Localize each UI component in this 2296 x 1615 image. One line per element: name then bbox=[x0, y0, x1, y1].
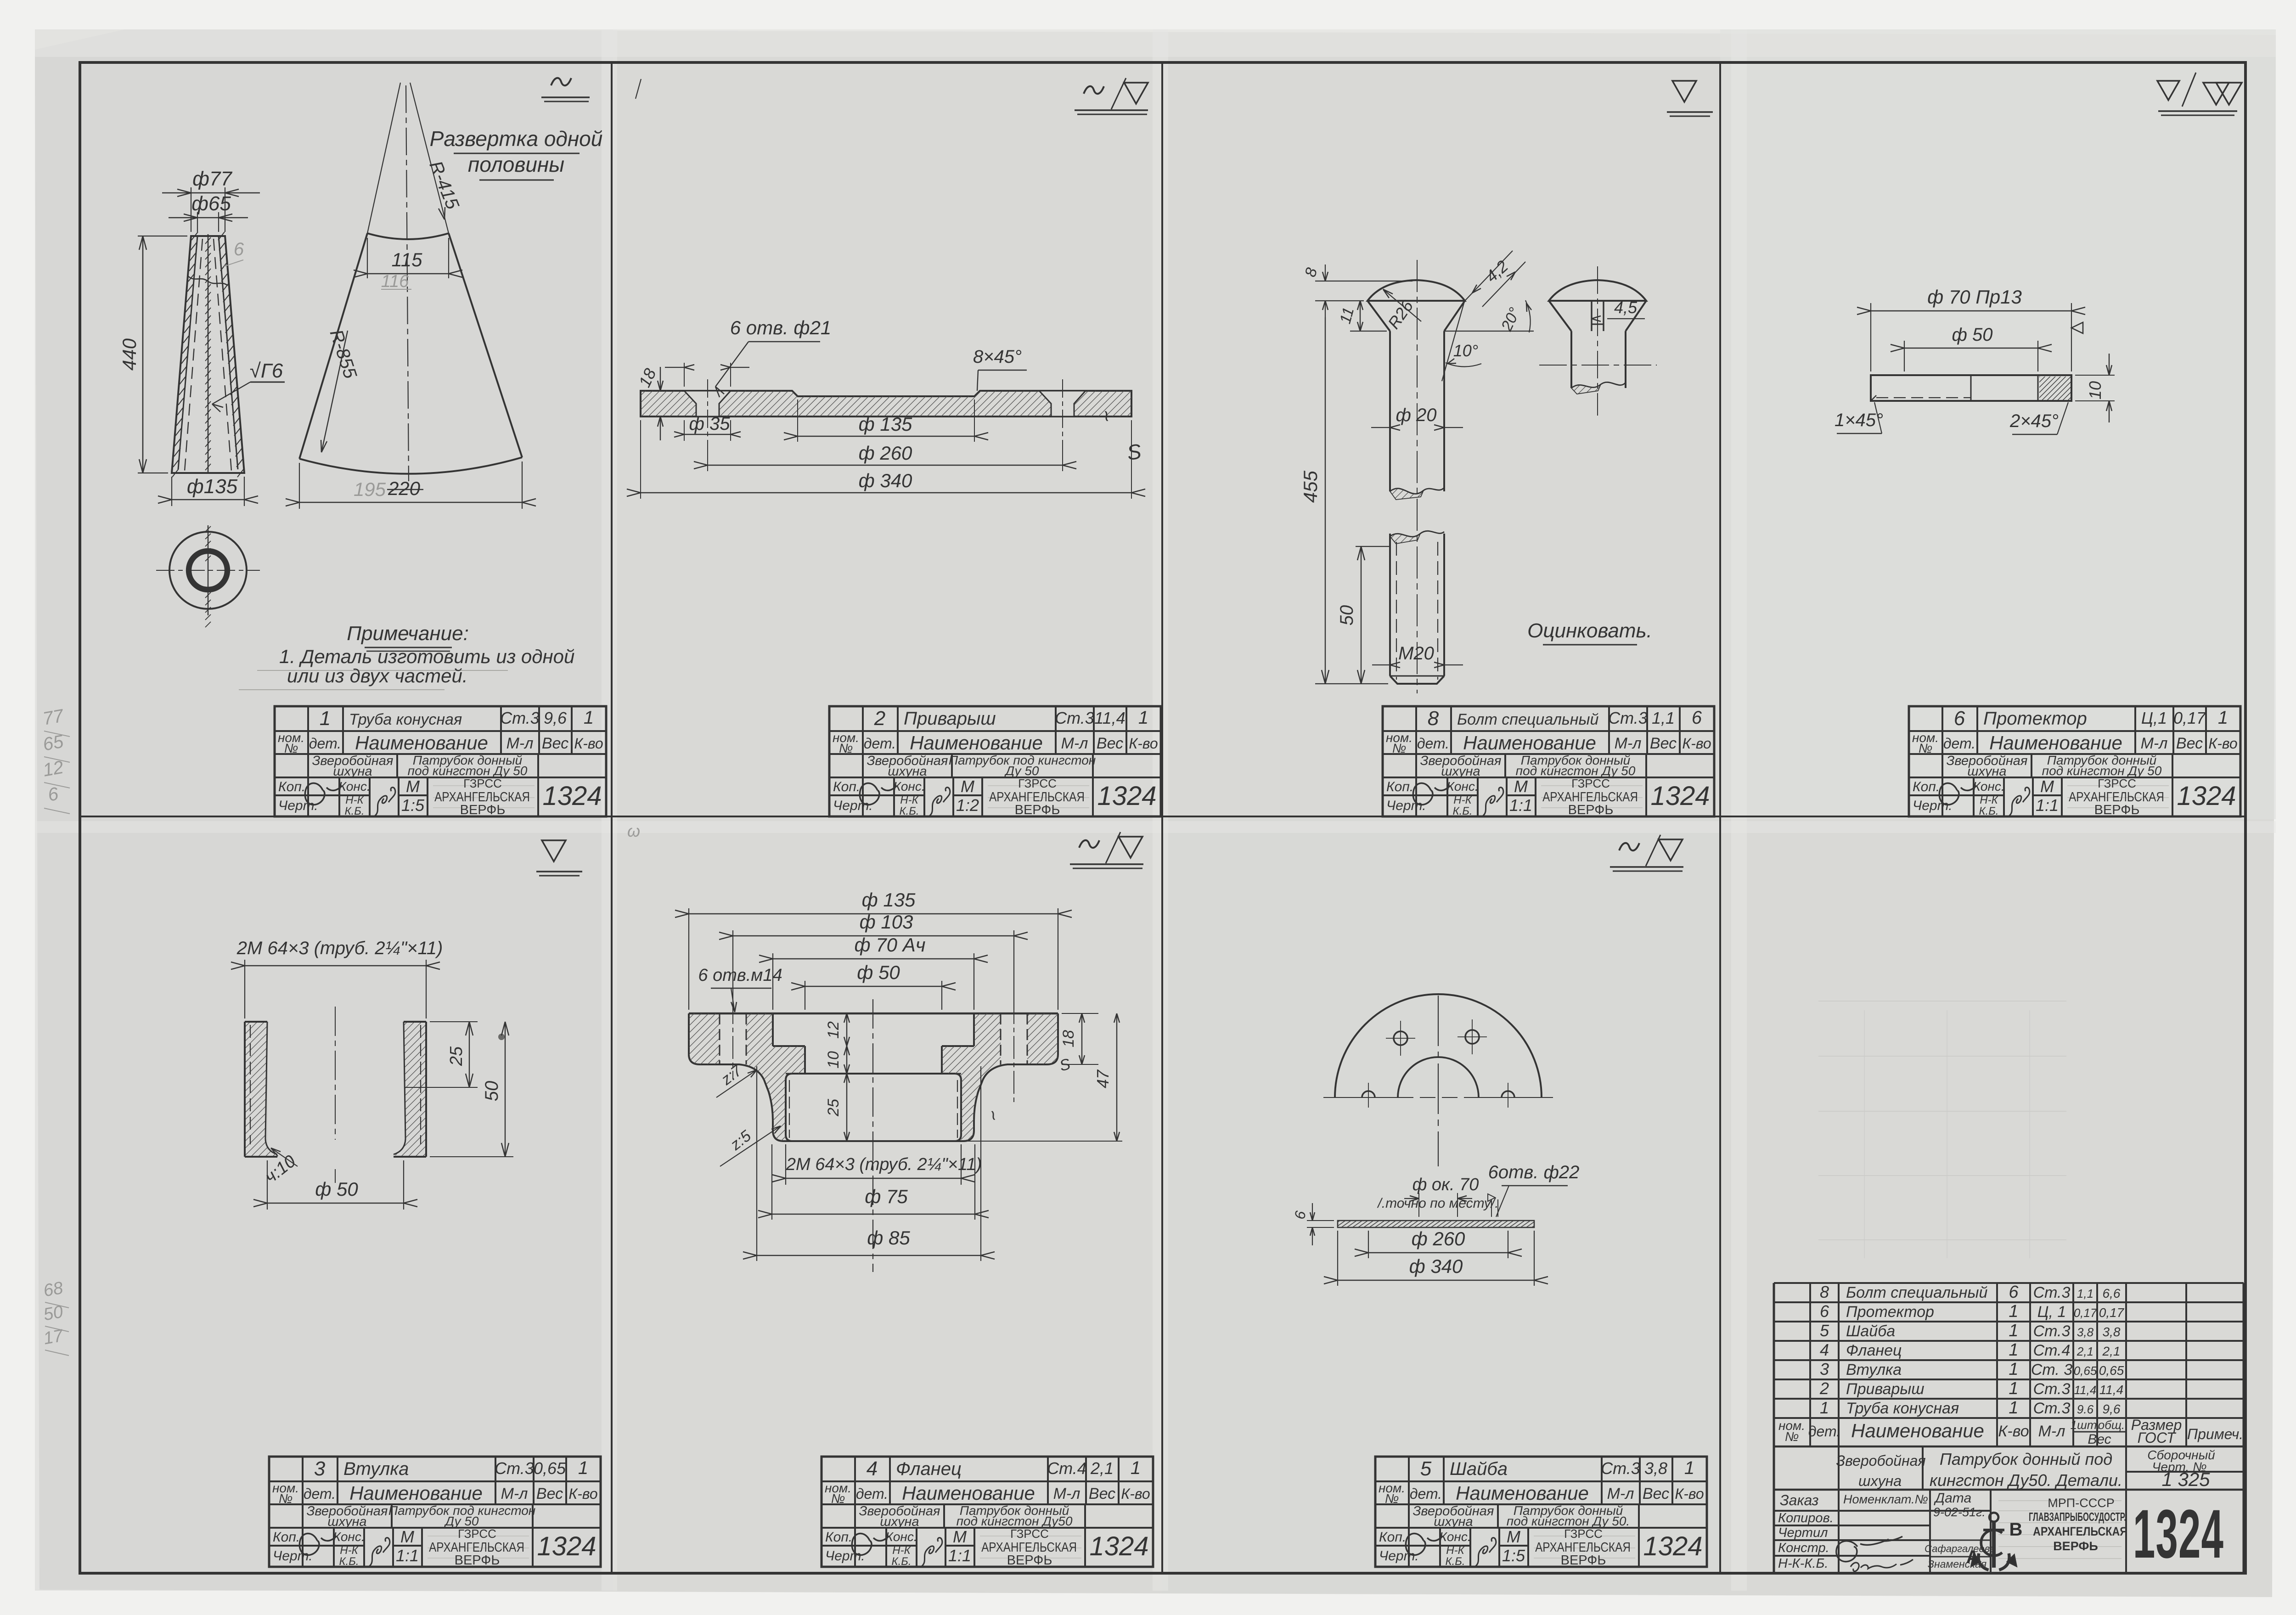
svg-text:0,17: 0,17 bbox=[2074, 1306, 2098, 1320]
svg-text:Конс.: Конс. bbox=[1446, 779, 1478, 793]
svg-text:6: 6 bbox=[1820, 1302, 1829, 1321]
svg-text:1: 1 bbox=[584, 708, 594, 728]
svg-text:№: № bbox=[831, 1491, 845, 1506]
svg-text:Втулка: Втулка bbox=[1846, 1361, 1902, 1379]
svg-text:Вес: Вес bbox=[1089, 1485, 1115, 1502]
svg-text:К.Б.: К.Б. bbox=[1452, 805, 1472, 817]
svg-text:Н-К: Н-К bbox=[340, 1544, 359, 1557]
svg-text:АРХАНГЕЛЬСКАЯ: АРХАНГЕЛЬСКАЯ bbox=[1535, 1540, 1631, 1554]
svg-text:М: М bbox=[953, 1527, 967, 1546]
svg-text:Ст.3: Ст.3 bbox=[1055, 709, 1094, 727]
svg-text:М-л: М-л bbox=[506, 735, 534, 752]
svg-text:К-во: К-во bbox=[1998, 1423, 2029, 1440]
svg-text:1: 1 bbox=[2009, 1379, 2018, 1398]
svg-text:Конс.: Конс. bbox=[333, 1530, 365, 1544]
svg-text:дет.: дет. bbox=[1410, 1486, 1442, 1502]
svg-text:1: 1 bbox=[1131, 1458, 1141, 1478]
svg-text:Коп.: Коп. bbox=[833, 779, 860, 794]
svg-text:Примеч.: Примеч. bbox=[2187, 1426, 2243, 1442]
svg-text:Зверобойная: Зверобойная bbox=[1836, 1452, 1925, 1469]
svg-text:Оцинковать.: Оцинковать. bbox=[1527, 619, 1652, 642]
svg-text:Наименование: Наименование bbox=[1463, 732, 1596, 754]
svg-text:дет.: дет. bbox=[304, 1486, 336, 1502]
svg-text:1: 1 bbox=[2009, 1321, 2018, 1340]
svg-text:1 325: 1 325 bbox=[2161, 1469, 2210, 1490]
svg-text:1: 1 bbox=[2218, 708, 2228, 728]
svg-text:440: 440 bbox=[118, 338, 140, 371]
svg-text:0,17: 0,17 bbox=[2173, 709, 2206, 727]
svg-text:11,4: 11,4 bbox=[2074, 1383, 2097, 1397]
svg-text:Наименование: Наименование bbox=[349, 1482, 483, 1504]
svg-text:ф 260: ф 260 bbox=[1412, 1228, 1465, 1249]
svg-text:под кингстон Ду 50.: под кингстон Ду 50. bbox=[1507, 1514, 1630, 1528]
svg-text:8: 8 bbox=[1820, 1283, 1829, 1301]
svg-text:Ст.3: Ст.3 bbox=[2033, 1322, 2071, 1340]
svg-text:Наименование: Наименование bbox=[1456, 1482, 1589, 1504]
svg-text:А: А bbox=[1966, 1547, 1980, 1567]
svg-text:Патрубок донный под: Патрубок донный под bbox=[1940, 1450, 2112, 1469]
svg-text:25: 25 bbox=[825, 1099, 842, 1117]
svg-text:дет.: дет. bbox=[1943, 735, 1975, 752]
svg-text:М-л: М-л bbox=[1615, 735, 1642, 752]
svg-text:2×45°: 2×45° bbox=[2009, 411, 2059, 431]
svg-text:2,1: 2,1 bbox=[2077, 1345, 2093, 1358]
svg-text:0,17: 0,17 bbox=[2099, 1306, 2125, 1320]
svg-text:Вес: Вес bbox=[1643, 1485, 1669, 1502]
svg-text:0,65: 0,65 bbox=[2099, 1363, 2124, 1378]
svg-text:Болт специальный: Болт специальный bbox=[1457, 711, 1599, 728]
svg-text:12: 12 bbox=[41, 757, 65, 781]
svg-text:2: 2 bbox=[874, 707, 885, 730]
svg-text:дет.: дет. bbox=[1808, 1423, 1840, 1440]
svg-text:ГЗРСС: ГЗРСС bbox=[1018, 777, 1057, 790]
svg-text:АРХАНГЕЛЬСКАЯ: АРХАНГЕЛЬСКАЯ bbox=[1542, 789, 1638, 804]
svg-text:ф65: ф65 bbox=[191, 192, 231, 215]
svg-text:1324: 1324 bbox=[542, 781, 602, 811]
svg-text:ВЕРФЬ: ВЕРФЬ bbox=[1561, 1553, 1606, 1568]
svg-text:шхуна: шхуна bbox=[1967, 764, 2006, 779]
svg-text:9.6: 9.6 bbox=[2077, 1402, 2094, 1416]
svg-text:под кингстон Ду 50: под кингстон Ду 50 bbox=[2042, 764, 2162, 778]
svg-text:1: 1 bbox=[2009, 1340, 2018, 1360]
svg-text:Н-К-К.Б.: Н-К-К.Б. bbox=[1778, 1556, 1828, 1571]
svg-text:6: 6 bbox=[2009, 1283, 2019, 1302]
svg-text:1:5: 1:5 bbox=[401, 796, 425, 815]
svg-text:Вес: Вес bbox=[536, 1485, 563, 1502]
svg-text:1: 1 bbox=[2009, 1360, 2018, 1379]
svg-text:М: М bbox=[2040, 777, 2054, 796]
svg-text:дет.: дет. bbox=[856, 1486, 888, 1502]
svg-text:кингстон Ду50. Детали.: кингстон Ду50. Детали. bbox=[1930, 1471, 2122, 1490]
svg-text:ВЕРФЬ: ВЕРФЬ bbox=[1007, 1553, 1052, 1568]
svg-text:половины: половины bbox=[468, 152, 564, 176]
svg-text:К-во: К-во bbox=[1682, 735, 1711, 752]
svg-text:1: 1 bbox=[1820, 1398, 1829, 1417]
svg-text:9,6: 9,6 bbox=[544, 709, 567, 727]
svg-text:ф 20: ф 20 bbox=[1396, 405, 1436, 425]
svg-text:3: 3 bbox=[314, 1457, 326, 1480]
svg-text:Фланец: Фланец bbox=[1846, 1342, 1902, 1359]
svg-text:Труба конусная: Труба конусная bbox=[1846, 1400, 1959, 1417]
svg-text:√Г6: √Г6 bbox=[250, 360, 283, 382]
svg-text:К.Б.: К.Б. bbox=[339, 1555, 359, 1568]
svg-text:АРХАНГЕЛЬСКАЯ: АРХАНГЕЛЬСКАЯ bbox=[2033, 1525, 2127, 1538]
svg-text:455: 455 bbox=[1300, 470, 1321, 503]
svg-text:под кингстон Ду50: под кингстон Ду50 bbox=[957, 1514, 1073, 1528]
svg-text:2М 64×3 (труб. 2¼"×11): 2М 64×3 (труб. 2¼"×11) bbox=[236, 938, 443, 958]
svg-text:2,1: 2,1 bbox=[1090, 1459, 1114, 1478]
svg-text:ВЕРФЬ: ВЕРФЬ bbox=[460, 803, 506, 817]
svg-text:АРХАНГЕЛЬСКАЯ: АРХАНГЕЛЬСКАЯ bbox=[434, 789, 530, 804]
svg-text:/.точно по месту/.: /.точно по месту/. bbox=[1377, 1196, 1498, 1211]
svg-text:Дата: Дата bbox=[1934, 1491, 1971, 1506]
svg-text:1шт.: 1шт. bbox=[2071, 1418, 2100, 1432]
svg-text:№: № bbox=[1392, 741, 1406, 755]
svg-text:ГЗРСС: ГЗРСС bbox=[1571, 777, 1610, 790]
svg-text:ВЕРФЬ: ВЕРФЬ bbox=[1015, 803, 1060, 817]
svg-text:1324: 1324 bbox=[1643, 1531, 1702, 1561]
svg-text:1: 1 bbox=[2009, 1302, 2018, 1321]
svg-text:Н-К: Н-К bbox=[1980, 794, 1998, 806]
svg-text:4,5: 4,5 bbox=[1614, 298, 1638, 317]
svg-text:шхуна: шхуна bbox=[1858, 1473, 1902, 1489]
svg-text:М: М bbox=[406, 777, 420, 796]
svg-text:Болт специальный: Болт специальный bbox=[1846, 1284, 1988, 1301]
svg-text:№: № bbox=[839, 741, 853, 755]
svg-text:ф 35: ф 35 bbox=[689, 414, 730, 434]
svg-text:под кингстон Ду 50: под кингстон Ду 50 bbox=[1516, 764, 1636, 778]
svg-text:М: М bbox=[1507, 1527, 1520, 1546]
svg-text:3,8: 3,8 bbox=[1644, 1459, 1667, 1478]
svg-text:шхуна: шхуна bbox=[880, 1514, 919, 1529]
svg-text:6 отв.м14: 6 отв.м14 bbox=[698, 966, 782, 985]
svg-text:АРХАНГЕЛЬСКАЯ: АРХАНГЕЛЬСКАЯ bbox=[981, 1540, 1077, 1554]
svg-text:Наименование: Наименование bbox=[1851, 1420, 1984, 1441]
svg-text:2: 2 bbox=[1819, 1379, 1829, 1398]
svg-text:шхуна: шхуна bbox=[333, 764, 372, 779]
svg-text:М-л: М-л bbox=[1607, 1485, 1634, 1502]
svg-text:АРХАНГЕЛЬСКАЯ: АРХАНГЕЛЬСКАЯ bbox=[989, 789, 1085, 804]
svg-text:3,8: 3,8 bbox=[2103, 1325, 2121, 1339]
svg-text:ВЕРФЬ: ВЕРФЬ bbox=[2053, 1539, 2098, 1553]
svg-text:Черт.: Черт. bbox=[825, 1548, 865, 1564]
svg-text:Конс.: Конс. bbox=[1439, 1530, 1471, 1544]
svg-text:9-02-51г.: 9-02-51г. bbox=[1933, 1505, 1986, 1519]
svg-text:10: 10 bbox=[825, 1051, 842, 1069]
svg-text:2,1: 2,1 bbox=[2102, 1344, 2121, 1358]
svg-text:Приварыш: Приварыш bbox=[1846, 1380, 1925, 1398]
svg-text:50: 50 bbox=[1337, 605, 1357, 626]
svg-text:1:1: 1:1 bbox=[948, 1546, 971, 1565]
svg-text:Коп.: Коп. bbox=[1386, 779, 1413, 794]
svg-text:1: 1 bbox=[1684, 1458, 1694, 1478]
svg-text:Констр.: Констр. bbox=[1778, 1541, 1829, 1555]
svg-text:дет.: дет. bbox=[1417, 735, 1449, 752]
svg-text:10°: 10° bbox=[1453, 341, 1478, 360]
svg-text:ф 135: ф 135 bbox=[862, 889, 916, 911]
svg-text:1:1: 1:1 bbox=[396, 1546, 419, 1565]
svg-text:ВЕРФЬ: ВЕРФЬ bbox=[455, 1553, 500, 1568]
svg-text:0,65: 0,65 bbox=[2074, 1364, 2097, 1378]
svg-text:9,6: 9,6 bbox=[2103, 1402, 2121, 1416]
svg-text:1×45°: 1×45° bbox=[1835, 410, 1883, 430]
svg-text:Наименование: Наименование bbox=[355, 732, 488, 754]
svg-text:Конс.: Конс. bbox=[1973, 779, 2004, 793]
svg-text:В: В bbox=[2009, 1519, 2023, 1540]
svg-text:220: 220 bbox=[388, 478, 421, 499]
svg-text:ф 260: ф 260 bbox=[859, 442, 912, 464]
svg-text:М: М bbox=[400, 1527, 414, 1546]
svg-text:11,4: 11,4 bbox=[2099, 1383, 2123, 1397]
svg-text:18: 18 bbox=[1060, 1030, 1077, 1047]
svg-text:1: 1 bbox=[578, 1458, 588, 1478]
svg-text:50: 50 bbox=[42, 1302, 64, 1325]
svg-text:М: М bbox=[961, 777, 974, 796]
svg-text:ГЗРСС: ГЗРСС bbox=[458, 1527, 496, 1541]
svg-text:68: 68 bbox=[42, 1278, 64, 1301]
svg-text:ф 50: ф 50 bbox=[1952, 325, 1992, 345]
svg-text:ГОСТ: ГОСТ bbox=[2138, 1429, 2177, 1446]
svg-text:47: 47 bbox=[1093, 1069, 1112, 1088]
svg-text:Черт.: Черт. bbox=[1386, 798, 1426, 813]
svg-text:Коп.: Коп. bbox=[1379, 1530, 1406, 1545]
svg-text:1324: 1324 bbox=[1650, 781, 1710, 811]
svg-text:К-во: К-во bbox=[1121, 1486, 1150, 1502]
svg-text:К.Б.: К.Б. bbox=[899, 805, 919, 817]
svg-text:М-л: М-л bbox=[501, 1485, 528, 1502]
svg-text:М-л: М-л bbox=[1053, 1485, 1080, 1502]
svg-text:ГЛАВЗАПРЫБОСУДОСТР.: ГЛАВЗАПРЫБОСУДОСТР. bbox=[2029, 1510, 2126, 1524]
svg-text:Ду 50: Ду 50 bbox=[444, 1514, 479, 1528]
svg-text:Шайба: Шайба bbox=[1846, 1322, 1895, 1340]
svg-text:115: 115 bbox=[392, 249, 423, 270]
svg-text:ГЗРСС: ГЗРСС bbox=[1010, 1527, 1049, 1541]
svg-text:8×45°: 8×45° bbox=[973, 347, 1022, 367]
svg-text:ф 340: ф 340 bbox=[1409, 1255, 1463, 1277]
svg-text:1:2: 1:2 bbox=[956, 796, 979, 815]
svg-text:Труба конусная: Труба конусная bbox=[349, 711, 462, 728]
svg-text:65: 65 bbox=[41, 732, 65, 755]
svg-text:Коп.: Коп. bbox=[1913, 779, 1940, 794]
svg-text:Коп.: Коп. bbox=[278, 779, 305, 794]
svg-text:Ст. 3: Ст. 3 bbox=[2031, 1361, 2072, 1379]
svg-text:№: № bbox=[1919, 741, 1932, 755]
svg-text:1:1: 1:1 bbox=[2036, 796, 2059, 815]
svg-text:МРП-СССР: МРП-СССР bbox=[2048, 1496, 2114, 1510]
svg-text:4: 4 bbox=[867, 1457, 878, 1480]
svg-text:под кингстон Ду 50: под кингстон Ду 50 bbox=[408, 764, 528, 778]
svg-text:Черт.: Черт. bbox=[273, 1548, 313, 1564]
svg-text:К-во: К-во bbox=[1675, 1486, 1704, 1502]
svg-text:Заказ: Заказ bbox=[1780, 1492, 1819, 1508]
svg-text:1:1: 1:1 bbox=[1509, 796, 1532, 815]
svg-text:№: № bbox=[279, 1491, 293, 1506]
svg-text:К.Б.: К.Б. bbox=[891, 1555, 911, 1568]
svg-text:М: М bbox=[1514, 777, 1528, 796]
svg-text:ГЗРСС: ГЗРСС bbox=[463, 777, 502, 790]
svg-text:1324: 1324 bbox=[2133, 1495, 2224, 1572]
svg-text:ВЕРФЬ: ВЕРФЬ bbox=[1568, 803, 1614, 817]
svg-text:116: 116 bbox=[381, 272, 409, 291]
svg-text:ф 50: ф 50 bbox=[857, 962, 900, 983]
svg-text:0,65: 0,65 bbox=[534, 1459, 566, 1478]
svg-text:АРХАНГЕЛЬСКАЯ: АРХАНГЕЛЬСКАЯ bbox=[429, 1540, 524, 1554]
svg-text:Конс.: Конс. bbox=[885, 1530, 917, 1544]
svg-text:11,4: 11,4 bbox=[1094, 709, 1125, 727]
svg-text:25: 25 bbox=[447, 1046, 466, 1066]
svg-text:1: 1 bbox=[320, 707, 331, 730]
svg-text:К.Б.: К.Б. bbox=[1979, 805, 1998, 817]
svg-text:ф 70 Ач: ф 70 Ач bbox=[855, 934, 926, 956]
svg-text:1: 1 bbox=[1138, 708, 1148, 728]
svg-text:Чертил: Чертил bbox=[1778, 1525, 1828, 1540]
svg-text:Ст.3: Ст.3 bbox=[1608, 709, 1648, 727]
svg-text:Ст.3: Ст.3 bbox=[2033, 1380, 2071, 1398]
svg-text:Ст.4: Ст.4 bbox=[2033, 1342, 2071, 1359]
svg-text:ф 70 Пр13: ф 70 Пр13 bbox=[1927, 286, 2022, 308]
svg-text:Приварыш: Приварыш bbox=[904, 709, 996, 729]
svg-text:ф 103: ф 103 bbox=[860, 911, 913, 933]
svg-text:ВЕРФЬ: ВЕРФЬ bbox=[2094, 803, 2140, 817]
svg-text:Черт.: Черт. bbox=[1379, 1548, 1419, 1564]
svg-text:Номенклат.№: Номенклат.№ bbox=[1843, 1492, 1928, 1506]
svg-text:Черт.: Черт. bbox=[833, 798, 873, 813]
svg-text:Коп.: Коп. bbox=[273, 1530, 300, 1545]
svg-text:дет.: дет. bbox=[864, 735, 896, 752]
svg-text:Вес: Вес bbox=[2176, 735, 2203, 752]
svg-text:Протектор: Протектор bbox=[1983, 709, 2087, 729]
svg-text:ф 85: ф 85 bbox=[867, 1227, 910, 1249]
svg-text:5: 5 bbox=[1820, 1321, 1829, 1340]
svg-text:Вес: Вес bbox=[542, 735, 568, 752]
svg-text:12: 12 bbox=[825, 1021, 842, 1039]
svg-text:6 отв. ф21: 6 отв. ф21 bbox=[730, 317, 831, 338]
svg-text:1,1: 1,1 bbox=[1652, 709, 1675, 727]
svg-text:ф 340: ф 340 bbox=[859, 470, 912, 491]
svg-text:Шайба: Шайба bbox=[1450, 1459, 1508, 1479]
svg-text:1324: 1324 bbox=[1089, 1531, 1148, 1561]
svg-text:ф 135: ф 135 bbox=[859, 413, 912, 435]
svg-text:Ст.3: Ст.3 bbox=[2033, 1284, 2071, 1301]
svg-text:Развертка одной: Развертка одной bbox=[430, 127, 603, 151]
svg-text:№: № bbox=[284, 741, 298, 755]
svg-text:Вес: Вес bbox=[1097, 735, 1123, 752]
svg-text:М-л: М-л bbox=[1061, 735, 1088, 752]
svg-text:6,6: 6,6 bbox=[2103, 1286, 2121, 1300]
svg-text:6: 6 bbox=[234, 239, 244, 259]
svg-text:Н-К: Н-К bbox=[1446, 1544, 1465, 1557]
svg-text:М-л: М-л bbox=[2141, 735, 2168, 752]
svg-text:Н-К: Н-К bbox=[345, 794, 364, 806]
svg-text:АРХАНГЕЛЬСКАЯ: АРХАНГЕЛЬСКАЯ bbox=[2069, 789, 2164, 804]
svg-text:шхуна: шхуна bbox=[1434, 1514, 1473, 1529]
svg-text:50: 50 bbox=[482, 1081, 502, 1102]
svg-text:ω: ω bbox=[627, 822, 640, 840]
svg-text:Фланец: Фланец bbox=[896, 1459, 962, 1479]
svg-text:Черт.: Черт. bbox=[278, 798, 318, 813]
svg-text:6: 6 bbox=[1692, 708, 1702, 728]
svg-text:1324: 1324 bbox=[537, 1531, 596, 1561]
svg-text:195: 195 bbox=[354, 478, 386, 500]
svg-text:шхуна: шхуна bbox=[1441, 764, 1480, 779]
svg-text:шхуна: шхуна bbox=[888, 764, 927, 779]
svg-text:К.Б.: К.Б. bbox=[1445, 1555, 1465, 1568]
svg-text:№: № bbox=[1385, 1491, 1399, 1506]
svg-text:3,8: 3,8 bbox=[2077, 1325, 2094, 1339]
svg-text:Примечание:: Примечание: bbox=[347, 622, 469, 645]
svg-text:К.Б.: К.Б. bbox=[344, 805, 364, 817]
svg-text:ф 50: ф 50 bbox=[315, 1178, 358, 1200]
svg-text:или из двух частей.: или из двух частей. bbox=[287, 665, 468, 687]
svg-text:Наименование: Наименование bbox=[910, 732, 1043, 754]
svg-text:4: 4 bbox=[1820, 1340, 1829, 1359]
svg-text:К-во: К-во bbox=[1129, 735, 1158, 752]
svg-text:Конс.: Конс. bbox=[338, 779, 370, 793]
svg-text:Наименование: Наименование bbox=[1989, 732, 2122, 754]
svg-text:Н-К: Н-К bbox=[892, 1544, 911, 1557]
svg-text:8: 8 bbox=[1428, 707, 1439, 730]
svg-text:Ц, 1: Ц, 1 bbox=[2037, 1303, 2066, 1321]
svg-text:шхуна: шхуна bbox=[327, 1514, 366, 1529]
svg-text:10: 10 bbox=[2086, 381, 2105, 400]
svg-text:6отв. ф22: 6отв. ф22 bbox=[1488, 1162, 1580, 1182]
svg-text:Протектор: Протектор bbox=[1846, 1303, 1934, 1321]
svg-text:М-л: М-л bbox=[2038, 1423, 2065, 1440]
svg-text:ф135: ф135 bbox=[187, 475, 238, 498]
svg-text:Ст.3: Ст.3 bbox=[2033, 1400, 2071, 1417]
svg-text:Н-К: Н-К bbox=[1453, 794, 1472, 806]
svg-text:Конс.: Конс. bbox=[893, 779, 925, 793]
svg-text:№: № bbox=[1785, 1429, 1799, 1444]
svg-text:К-во: К-во bbox=[574, 735, 603, 752]
svg-text:ф77: ф77 bbox=[192, 168, 232, 190]
svg-text:3: 3 bbox=[1820, 1360, 1829, 1379]
svg-text:1324: 1324 bbox=[1097, 781, 1156, 811]
svg-text:1,1: 1,1 bbox=[2077, 1287, 2093, 1300]
svg-text:2М 64×3 (труб. 2¼"×11): 2М 64×3 (труб. 2¼"×11) bbox=[786, 1155, 982, 1174]
svg-text:К-во: К-во bbox=[2208, 735, 2237, 752]
svg-text:1: 1 bbox=[2009, 1398, 2018, 1418]
svg-text:Втулка: Втулка bbox=[343, 1459, 409, 1479]
svg-text:ГЗРСС: ГЗРСС bbox=[1564, 1527, 1603, 1541]
svg-text:Копиров.: Копиров. bbox=[1778, 1511, 1834, 1525]
svg-text:ф ок. 70: ф ок. 70 bbox=[1412, 1175, 1479, 1194]
svg-text:ГЗРСС: ГЗРСС bbox=[2098, 777, 2136, 790]
svg-text:Ст.3: Ст.3 bbox=[1601, 1459, 1640, 1478]
svg-text:Коп.: Коп. bbox=[825, 1530, 852, 1545]
svg-text:Вес: Вес bbox=[1650, 735, 1677, 752]
svg-text:ф 75: ф 75 bbox=[865, 1186, 908, 1207]
svg-text:Вес: Вес bbox=[2088, 1432, 2111, 1447]
svg-text:М20: М20 bbox=[1398, 643, 1434, 664]
svg-text:Наименование: Наименование bbox=[902, 1482, 1035, 1504]
svg-text:Ц,1: Ц,1 bbox=[2141, 709, 2167, 727]
svg-text:5: 5 bbox=[1420, 1457, 1432, 1480]
svg-text:1. Деталь изготовить из одной: 1. Деталь изготовить из одной bbox=[279, 646, 574, 667]
svg-text:Ст.3: Ст.3 bbox=[495, 1459, 534, 1478]
svg-text:Ст.3: Ст.3 bbox=[500, 709, 540, 727]
svg-text:1:5: 1:5 bbox=[1502, 1546, 1525, 1565]
svg-text:Ду 50: Ду 50 bbox=[1004, 764, 1039, 778]
svg-text:дет.: дет. bbox=[309, 735, 341, 752]
svg-text:Ст.4: Ст.4 bbox=[1047, 1459, 1086, 1478]
svg-text:общ.: общ. bbox=[2098, 1418, 2125, 1432]
svg-text:6: 6 bbox=[1954, 707, 1965, 730]
svg-text:1324: 1324 bbox=[2177, 781, 2236, 811]
svg-text:Н-К: Н-К bbox=[900, 794, 919, 806]
svg-text:К-во: К-во bbox=[568, 1486, 597, 1502]
svg-text:Черт.: Черт. bbox=[1913, 798, 1953, 813]
